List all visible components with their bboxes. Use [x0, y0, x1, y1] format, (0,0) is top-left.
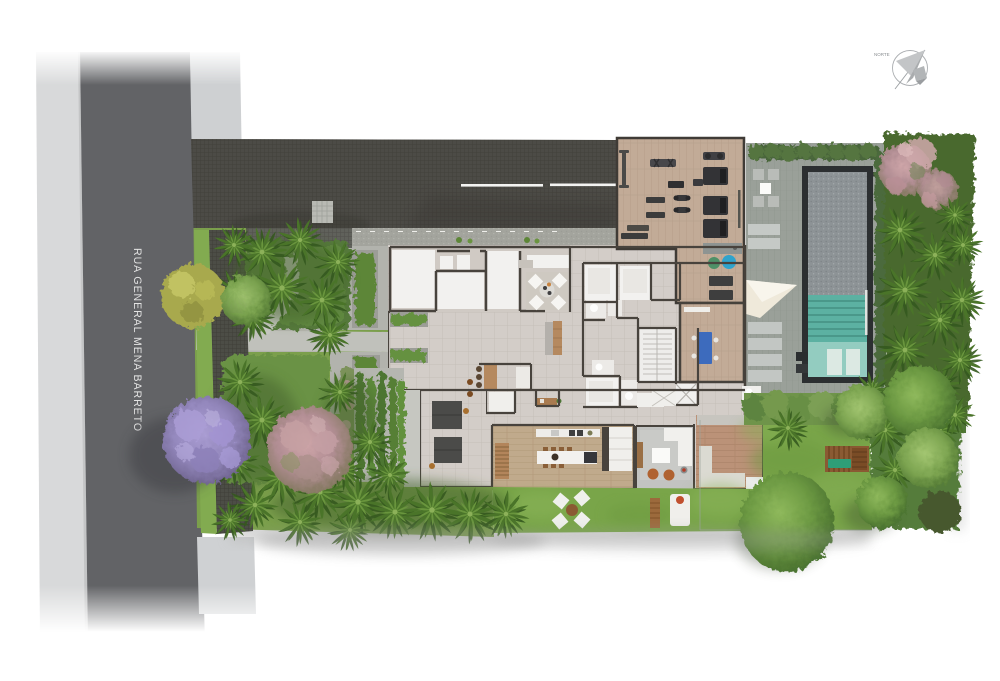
svg-text:RUA GENERAL MENA BARRETO: RUA GENERAL MENA BARRETO	[131, 248, 143, 432]
svg-text:NORTE: NORTE	[874, 52, 890, 57]
